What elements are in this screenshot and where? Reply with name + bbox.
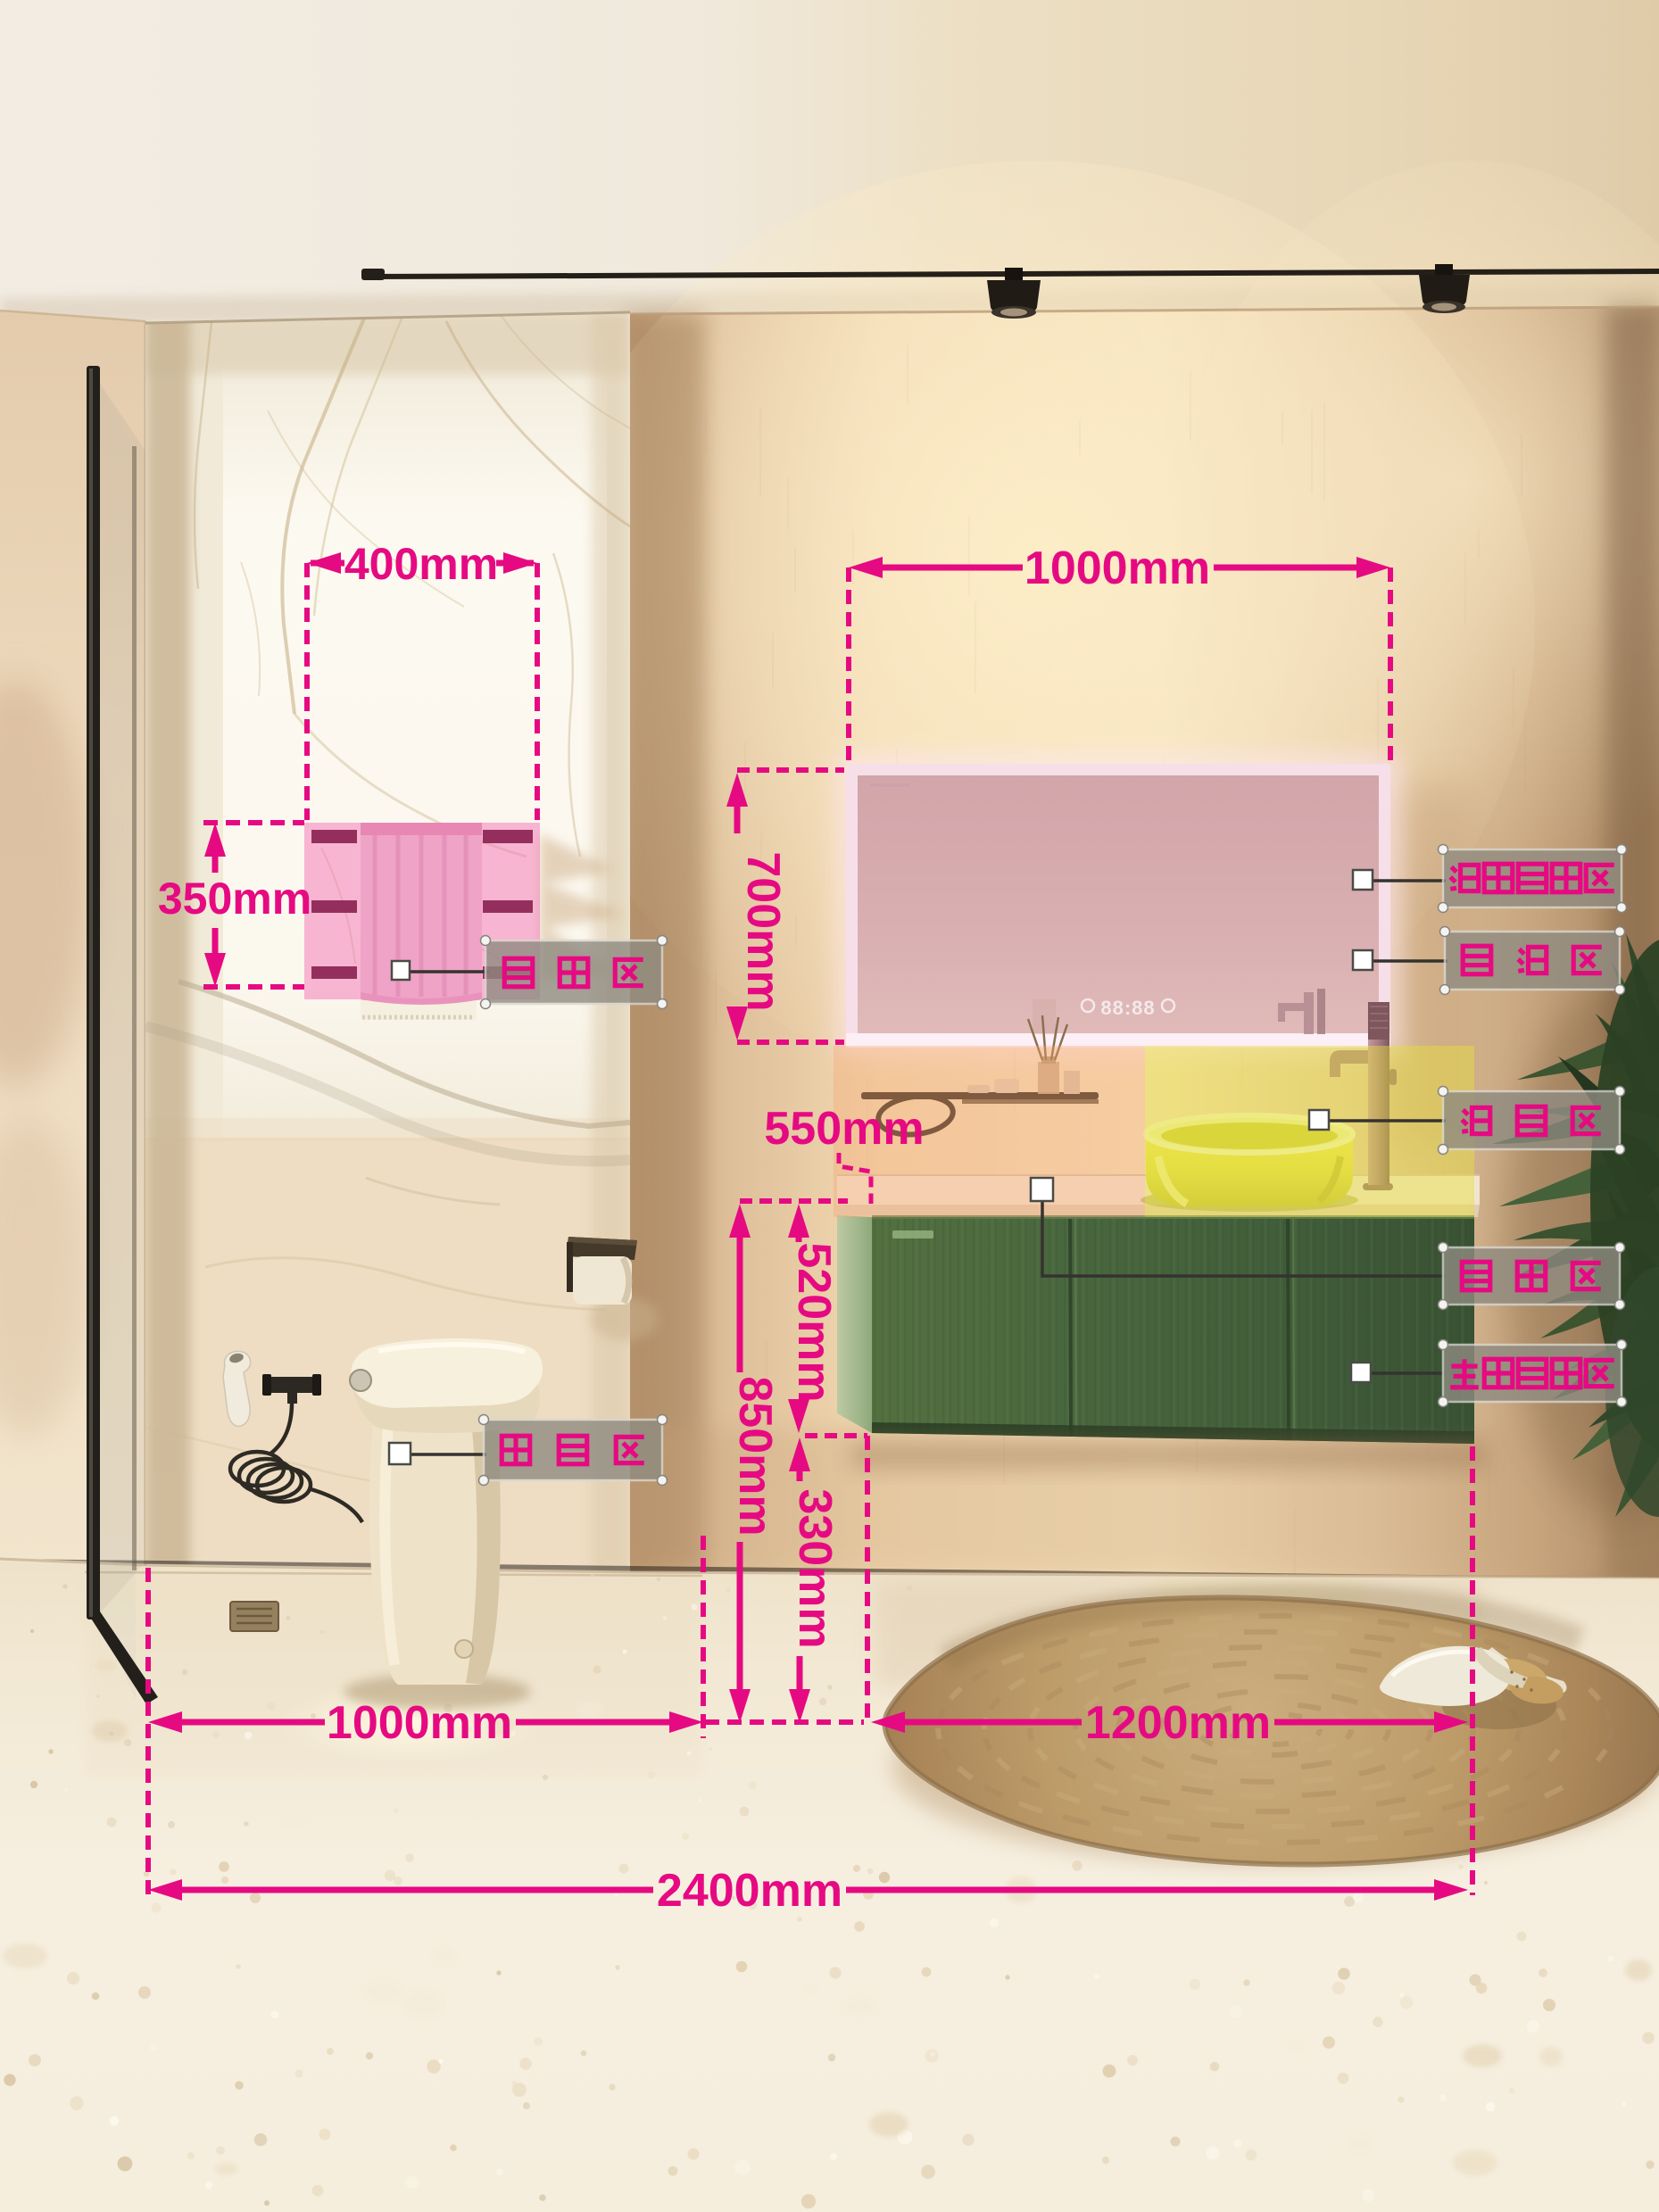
svg-text:1000mm: 1000mm	[1024, 543, 1210, 594]
svg-text:1000mm: 1000mm	[327, 1697, 512, 1749]
svg-text:400mm: 400mm	[344, 539, 498, 589]
svg-text:520mm: 520mm	[788, 1242, 840, 1402]
svg-text:88:88: 88:88	[1100, 997, 1155, 1019]
svg-text:700mm: 700mm	[737, 851, 789, 1011]
svg-text:330mm: 330mm	[789, 1488, 841, 1648]
svg-text:2400mm: 2400mm	[657, 1865, 842, 1917]
svg-text:350mm: 350mm	[158, 874, 311, 924]
svg-text:550mm: 550mm	[764, 1103, 924, 1155]
svg-text:1200mm: 1200mm	[1085, 1697, 1271, 1749]
svg-text:850mm: 850mm	[729, 1376, 781, 1536]
